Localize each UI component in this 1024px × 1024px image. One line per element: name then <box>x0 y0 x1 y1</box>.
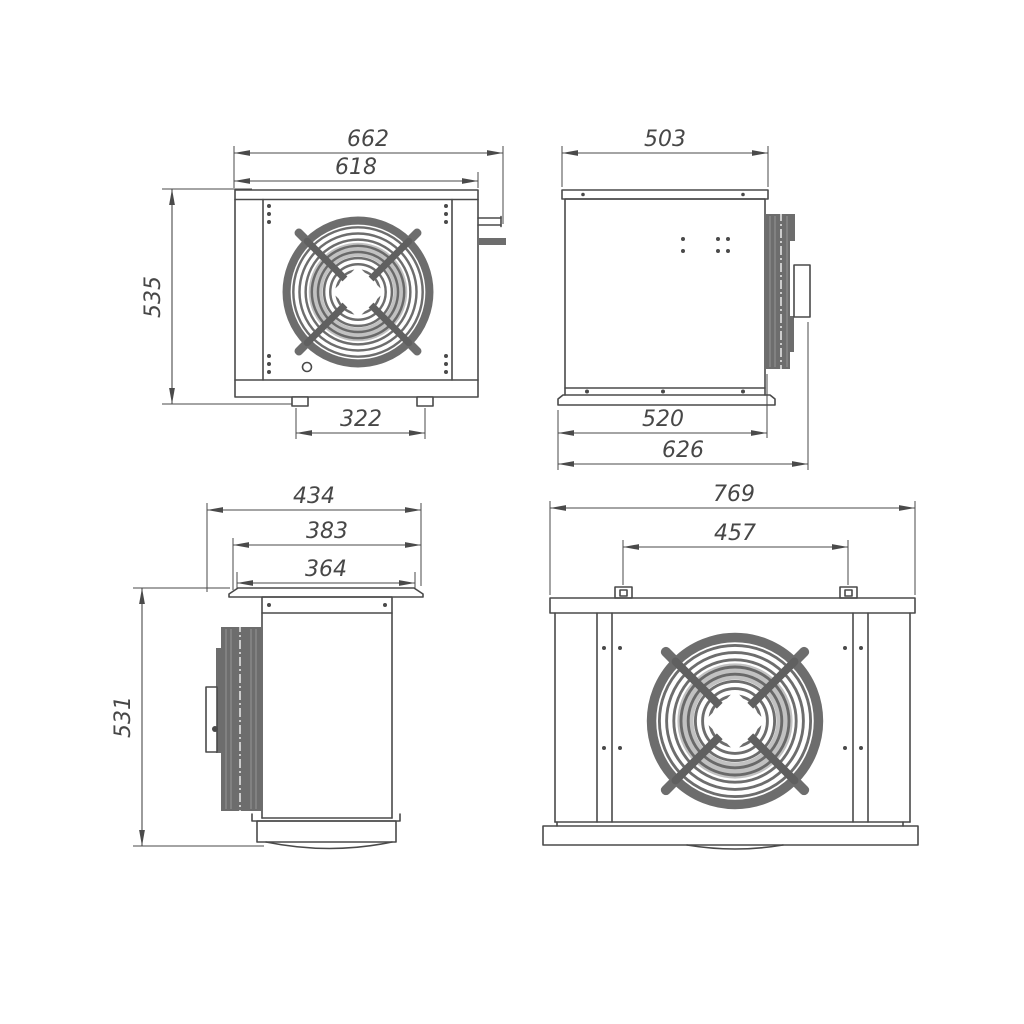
dim-label-rear-overall-width: 769 <box>713 482 755 507</box>
side-view-left: 434 383 364 531 <box>111 484 423 849</box>
front-pipe-connections <box>478 217 506 246</box>
dim-front-feet-spacing: 322 <box>296 407 425 439</box>
side-right-bracket <box>794 265 810 317</box>
side-left-body <box>262 613 392 818</box>
dim-label-side-left-height: 531 <box>111 696 136 738</box>
dim-label-rear-mount-hole-spacing: 457 <box>714 521 756 546</box>
side-view-right: 503 520 626 <box>558 127 810 470</box>
side-left-condenser-coil <box>216 623 262 814</box>
dimensional-drawing: 662 618 535 322 <box>0 0 1024 1024</box>
rear-fan-guard <box>650 636 819 805</box>
side-right-body <box>558 190 775 405</box>
front-feet <box>292 397 433 406</box>
dim-label-side-right-top-width: 503 <box>644 127 686 152</box>
dim-side-left-top-plate-width: 364 <box>237 557 415 589</box>
side-right-screws <box>585 237 745 394</box>
dim-label-side-left-overall-depth: 434 <box>293 484 335 509</box>
side-left-base <box>252 814 400 849</box>
rear-view: 769 457 <box>543 482 918 849</box>
side-right-condenser-coil <box>766 212 795 371</box>
dim-side-right-top-width: 503 <box>562 127 768 187</box>
dim-label-front-body-width: 618 <box>335 155 377 180</box>
dim-front-body-width: 618 <box>234 155 478 188</box>
dim-rear-mount-hole-spacing: 457 <box>623 521 848 585</box>
dim-label-side-left-top-plate-width: 364 <box>305 557 347 582</box>
rear-mount-tabs <box>615 587 857 598</box>
side-left-top-flange <box>229 588 423 613</box>
dim-label-side-right-overall-depth: 626 <box>662 438 704 463</box>
front-view: 662 618 535 322 <box>141 127 506 439</box>
dim-label-front-height: 535 <box>141 276 166 318</box>
dim-label-side-left-flange-width: 383 <box>306 519 348 544</box>
front-drain-hole <box>303 363 312 372</box>
dim-label-front-overall-width: 662 <box>347 127 389 152</box>
side-left-bracket <box>206 687 218 752</box>
rear-base <box>543 822 918 849</box>
front-fan-guard <box>286 220 431 365</box>
dim-label-side-right-base-width: 520 <box>642 407 684 432</box>
dim-label-front-feet-spacing: 322 <box>340 407 382 432</box>
